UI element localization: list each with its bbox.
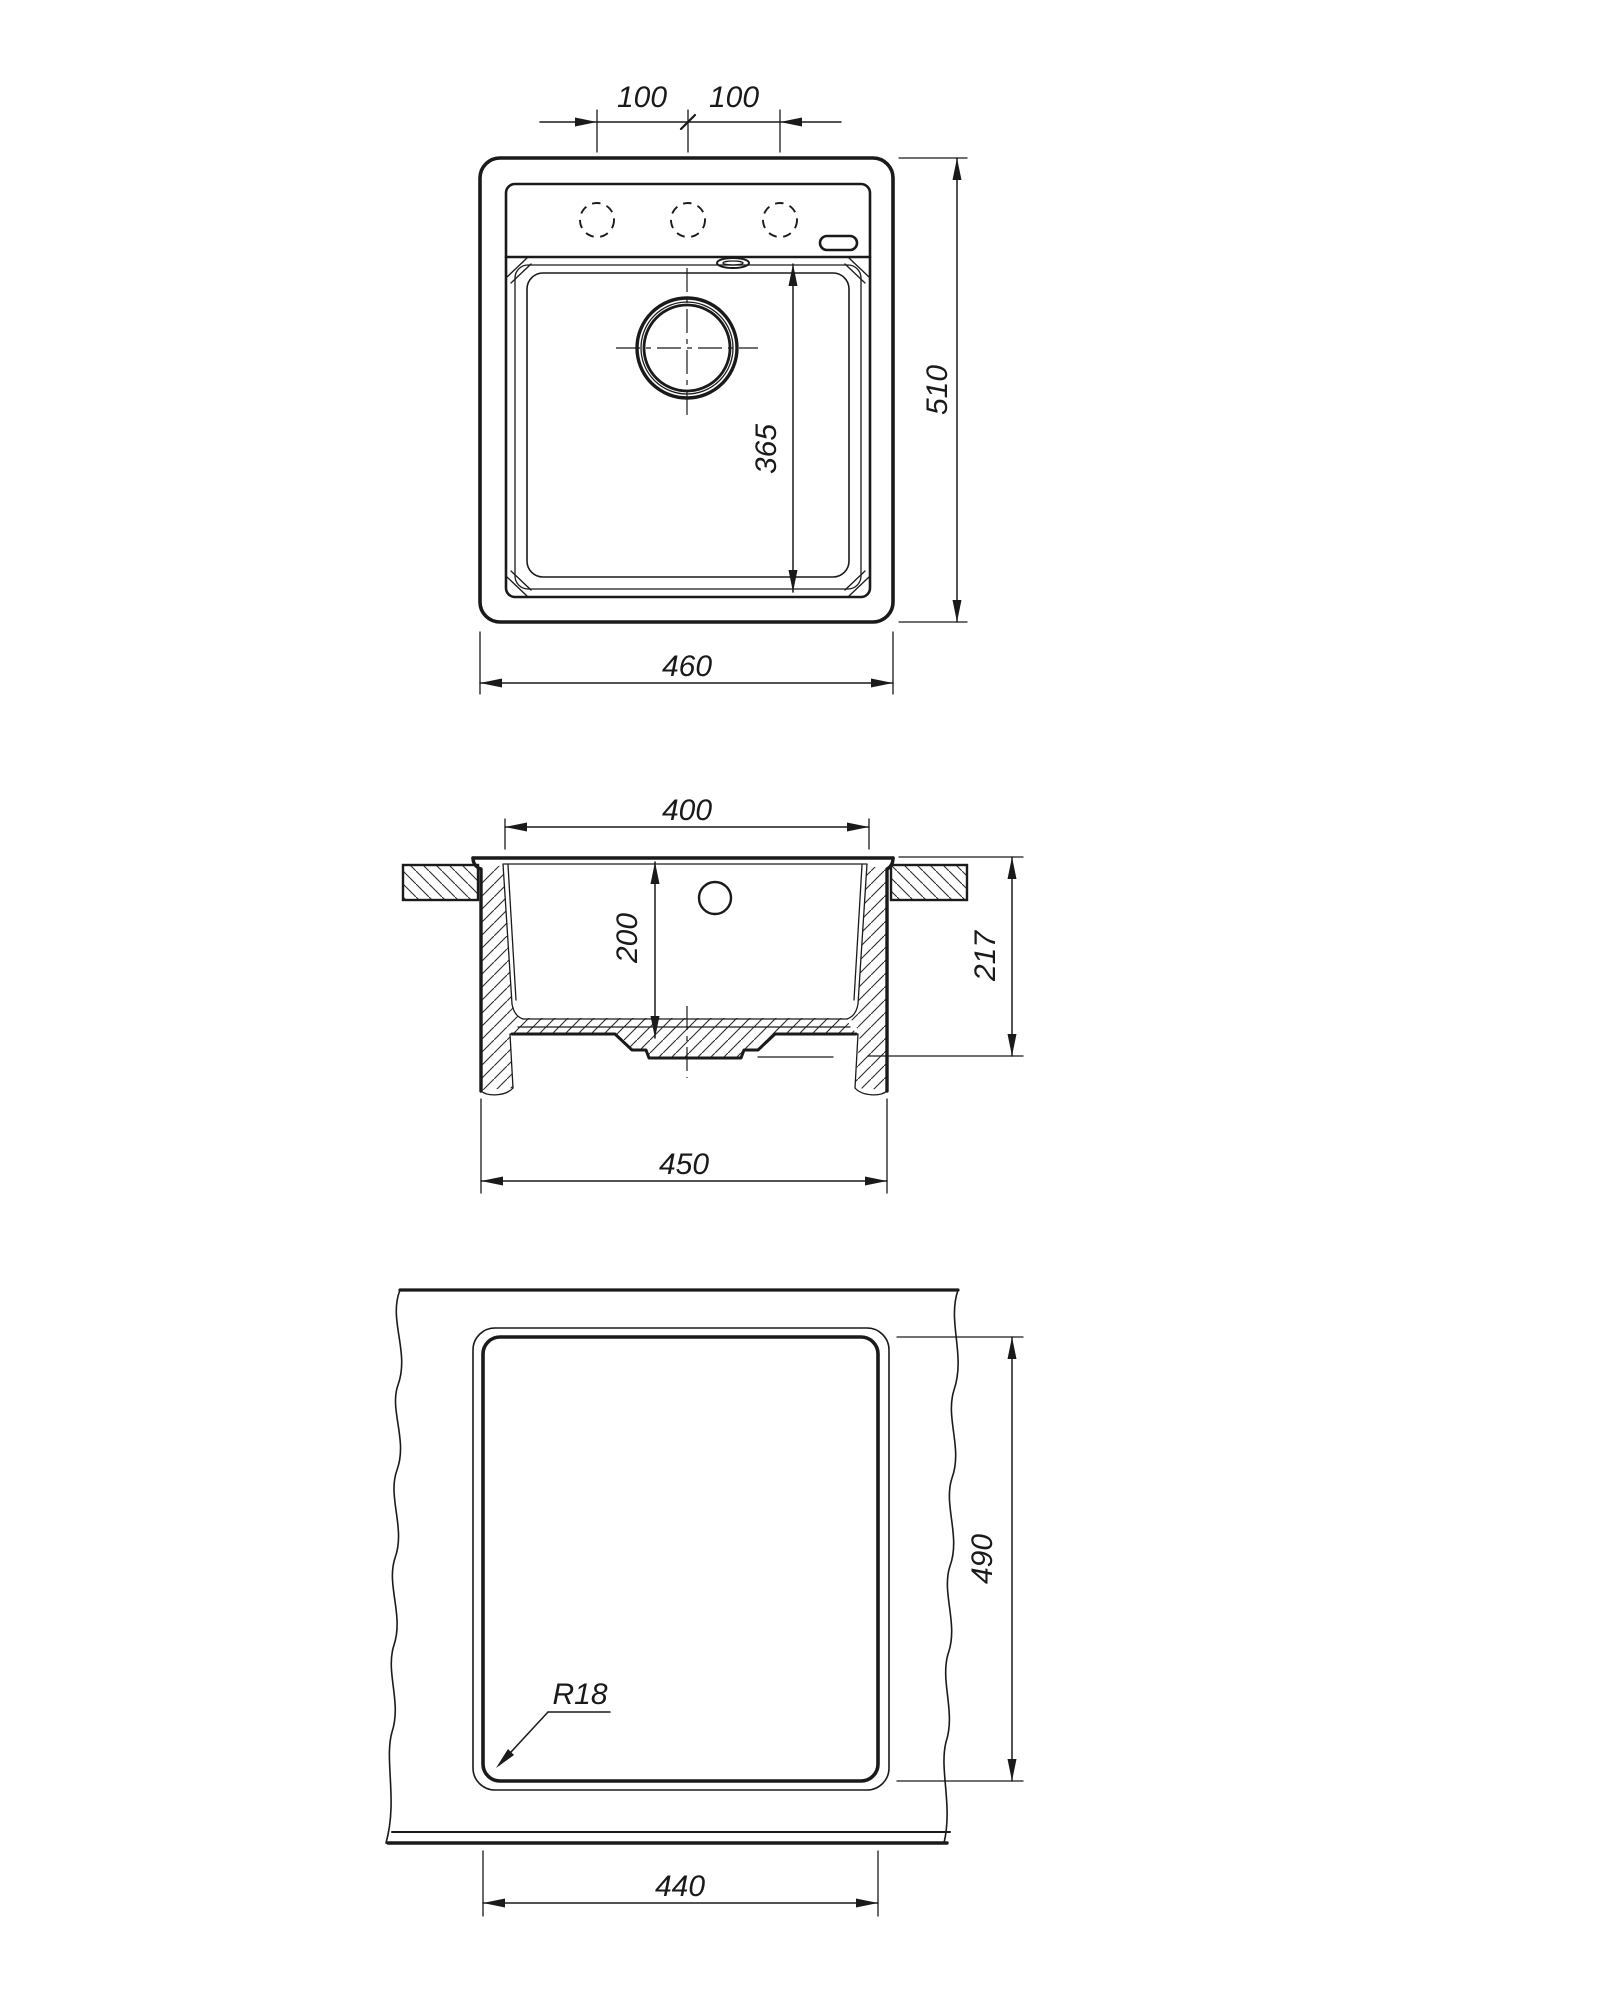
pushbutton-slot xyxy=(820,236,857,250)
section-view: 400 200 217 450 xyxy=(403,794,1023,1193)
overflow-slot xyxy=(717,258,749,268)
countertop-section-left xyxy=(403,865,478,900)
dim-label-bowl-depth: 200 xyxy=(611,913,644,964)
dim-label-overall-height: 217 xyxy=(969,930,1002,982)
faucet-hole-center xyxy=(671,203,705,237)
bowl xyxy=(506,257,870,596)
dim-label-bowl-length: 365 xyxy=(750,424,783,474)
bowl-rim-mid-line xyxy=(515,265,861,589)
cutout-outline xyxy=(483,1337,878,1781)
dim-label-hole-pitch-left: 100 xyxy=(617,81,667,114)
countertop-section-right xyxy=(891,865,967,900)
dim-label-overall-width: 460 xyxy=(662,650,712,683)
bowl-inner-edge xyxy=(527,273,849,577)
countertop-edges xyxy=(386,1290,958,1843)
dim-label-cutout-width: 440 xyxy=(655,1870,705,1903)
dim-bowl-top-width: 400 xyxy=(505,794,869,849)
dim-body-bottom-width: 450 xyxy=(481,1099,887,1193)
sink-technical-drawing: 100 100 510 460 365 xyxy=(0,0,1600,2011)
break-line-right xyxy=(944,1290,958,1843)
sink-footprint-outline xyxy=(473,1328,889,1790)
faucet-hole-left xyxy=(580,203,614,237)
dim-bowl-depth: 200 xyxy=(611,862,660,1038)
drawing-sheet: 100 100 510 460 365 xyxy=(0,0,1600,2011)
dim-overall-width: 460 xyxy=(480,632,893,694)
bowl-corner-chamfers xyxy=(507,258,869,596)
top-view: 100 100 510 460 365 xyxy=(480,81,967,694)
dim-label-corner-radius: R18 xyxy=(552,1678,607,1711)
dim-hole-pitch: 100 100 xyxy=(540,81,841,152)
drain xyxy=(616,268,758,420)
dim-label-cutout-depth: 490 xyxy=(966,1534,999,1584)
dim-label-bowl-top-width: 400 xyxy=(662,794,712,827)
overflow-slot-inner xyxy=(723,261,743,265)
faucet-hole-right xyxy=(763,203,797,237)
dim-cutout-depth: 490 xyxy=(897,1337,1023,1781)
dim-cutout-width: 440 xyxy=(483,1851,878,1916)
dim-label-body-bottom-width: 450 xyxy=(659,1148,709,1181)
sink-section-hatch xyxy=(481,865,887,1090)
overflow-hole xyxy=(699,882,731,914)
faucet-holes xyxy=(580,203,797,237)
dim-label-overall-depth: 510 xyxy=(921,365,954,415)
dim-overall-depth: 510 xyxy=(899,158,967,622)
dim-label-hole-pitch-right: 100 xyxy=(709,81,759,114)
sink-section-outline xyxy=(473,858,893,1095)
dim-bowl-length: 365 xyxy=(750,264,798,592)
radius-callout: R18 xyxy=(496,1678,610,1768)
cutout-view: 490 440 R18 xyxy=(386,1290,1023,1916)
break-line-left xyxy=(386,1290,402,1843)
